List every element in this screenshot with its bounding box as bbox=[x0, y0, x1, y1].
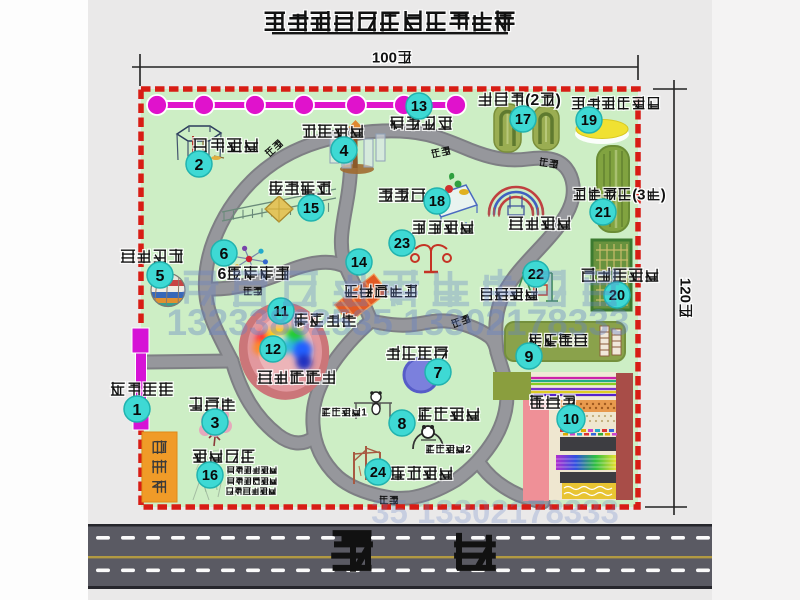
svg-text:15: 15 bbox=[303, 201, 319, 217]
svg-text:22: 22 bbox=[528, 267, 544, 283]
svg-text:9: 9 bbox=[525, 349, 534, 366]
svg-text:13: 13 bbox=[411, 99, 427, 115]
svg-text:10: 10 bbox=[563, 412, 579, 428]
svg-text:23: 23 bbox=[394, 236, 410, 252]
svg-text:1: 1 bbox=[133, 402, 142, 419]
svg-text:2: 2 bbox=[465, 445, 471, 456]
svg-text:120: 120 bbox=[677, 278, 694, 303]
svg-text:100: 100 bbox=[372, 49, 397, 66]
svg-text:6: 6 bbox=[218, 266, 227, 283]
svg-text:(3: (3 bbox=[632, 186, 645, 203]
svg-text:13233862535 13302178333: 13233862535 13302178333 bbox=[167, 302, 630, 343]
svg-text:21: 21 bbox=[595, 205, 611, 221]
svg-text:6: 6 bbox=[220, 246, 229, 263]
svg-text:19: 19 bbox=[581, 113, 597, 129]
svg-text:14: 14 bbox=[351, 255, 367, 271]
svg-text:7: 7 bbox=[434, 365, 443, 382]
svg-text:8: 8 bbox=[398, 416, 407, 433]
svg-text:): ) bbox=[661, 186, 666, 203]
svg-text:12: 12 bbox=[265, 342, 281, 358]
svg-text:5: 5 bbox=[156, 268, 165, 285]
svg-text:16: 16 bbox=[202, 468, 218, 484]
svg-text:18: 18 bbox=[429, 194, 445, 210]
svg-text:): ) bbox=[556, 92, 561, 109]
svg-text:17: 17 bbox=[515, 112, 531, 128]
svg-text:24: 24 bbox=[370, 465, 386, 481]
svg-text:1: 1 bbox=[361, 408, 367, 419]
svg-text:2: 2 bbox=[195, 157, 204, 174]
svg-text:4: 4 bbox=[340, 143, 349, 160]
svg-text:3: 3 bbox=[211, 415, 220, 432]
